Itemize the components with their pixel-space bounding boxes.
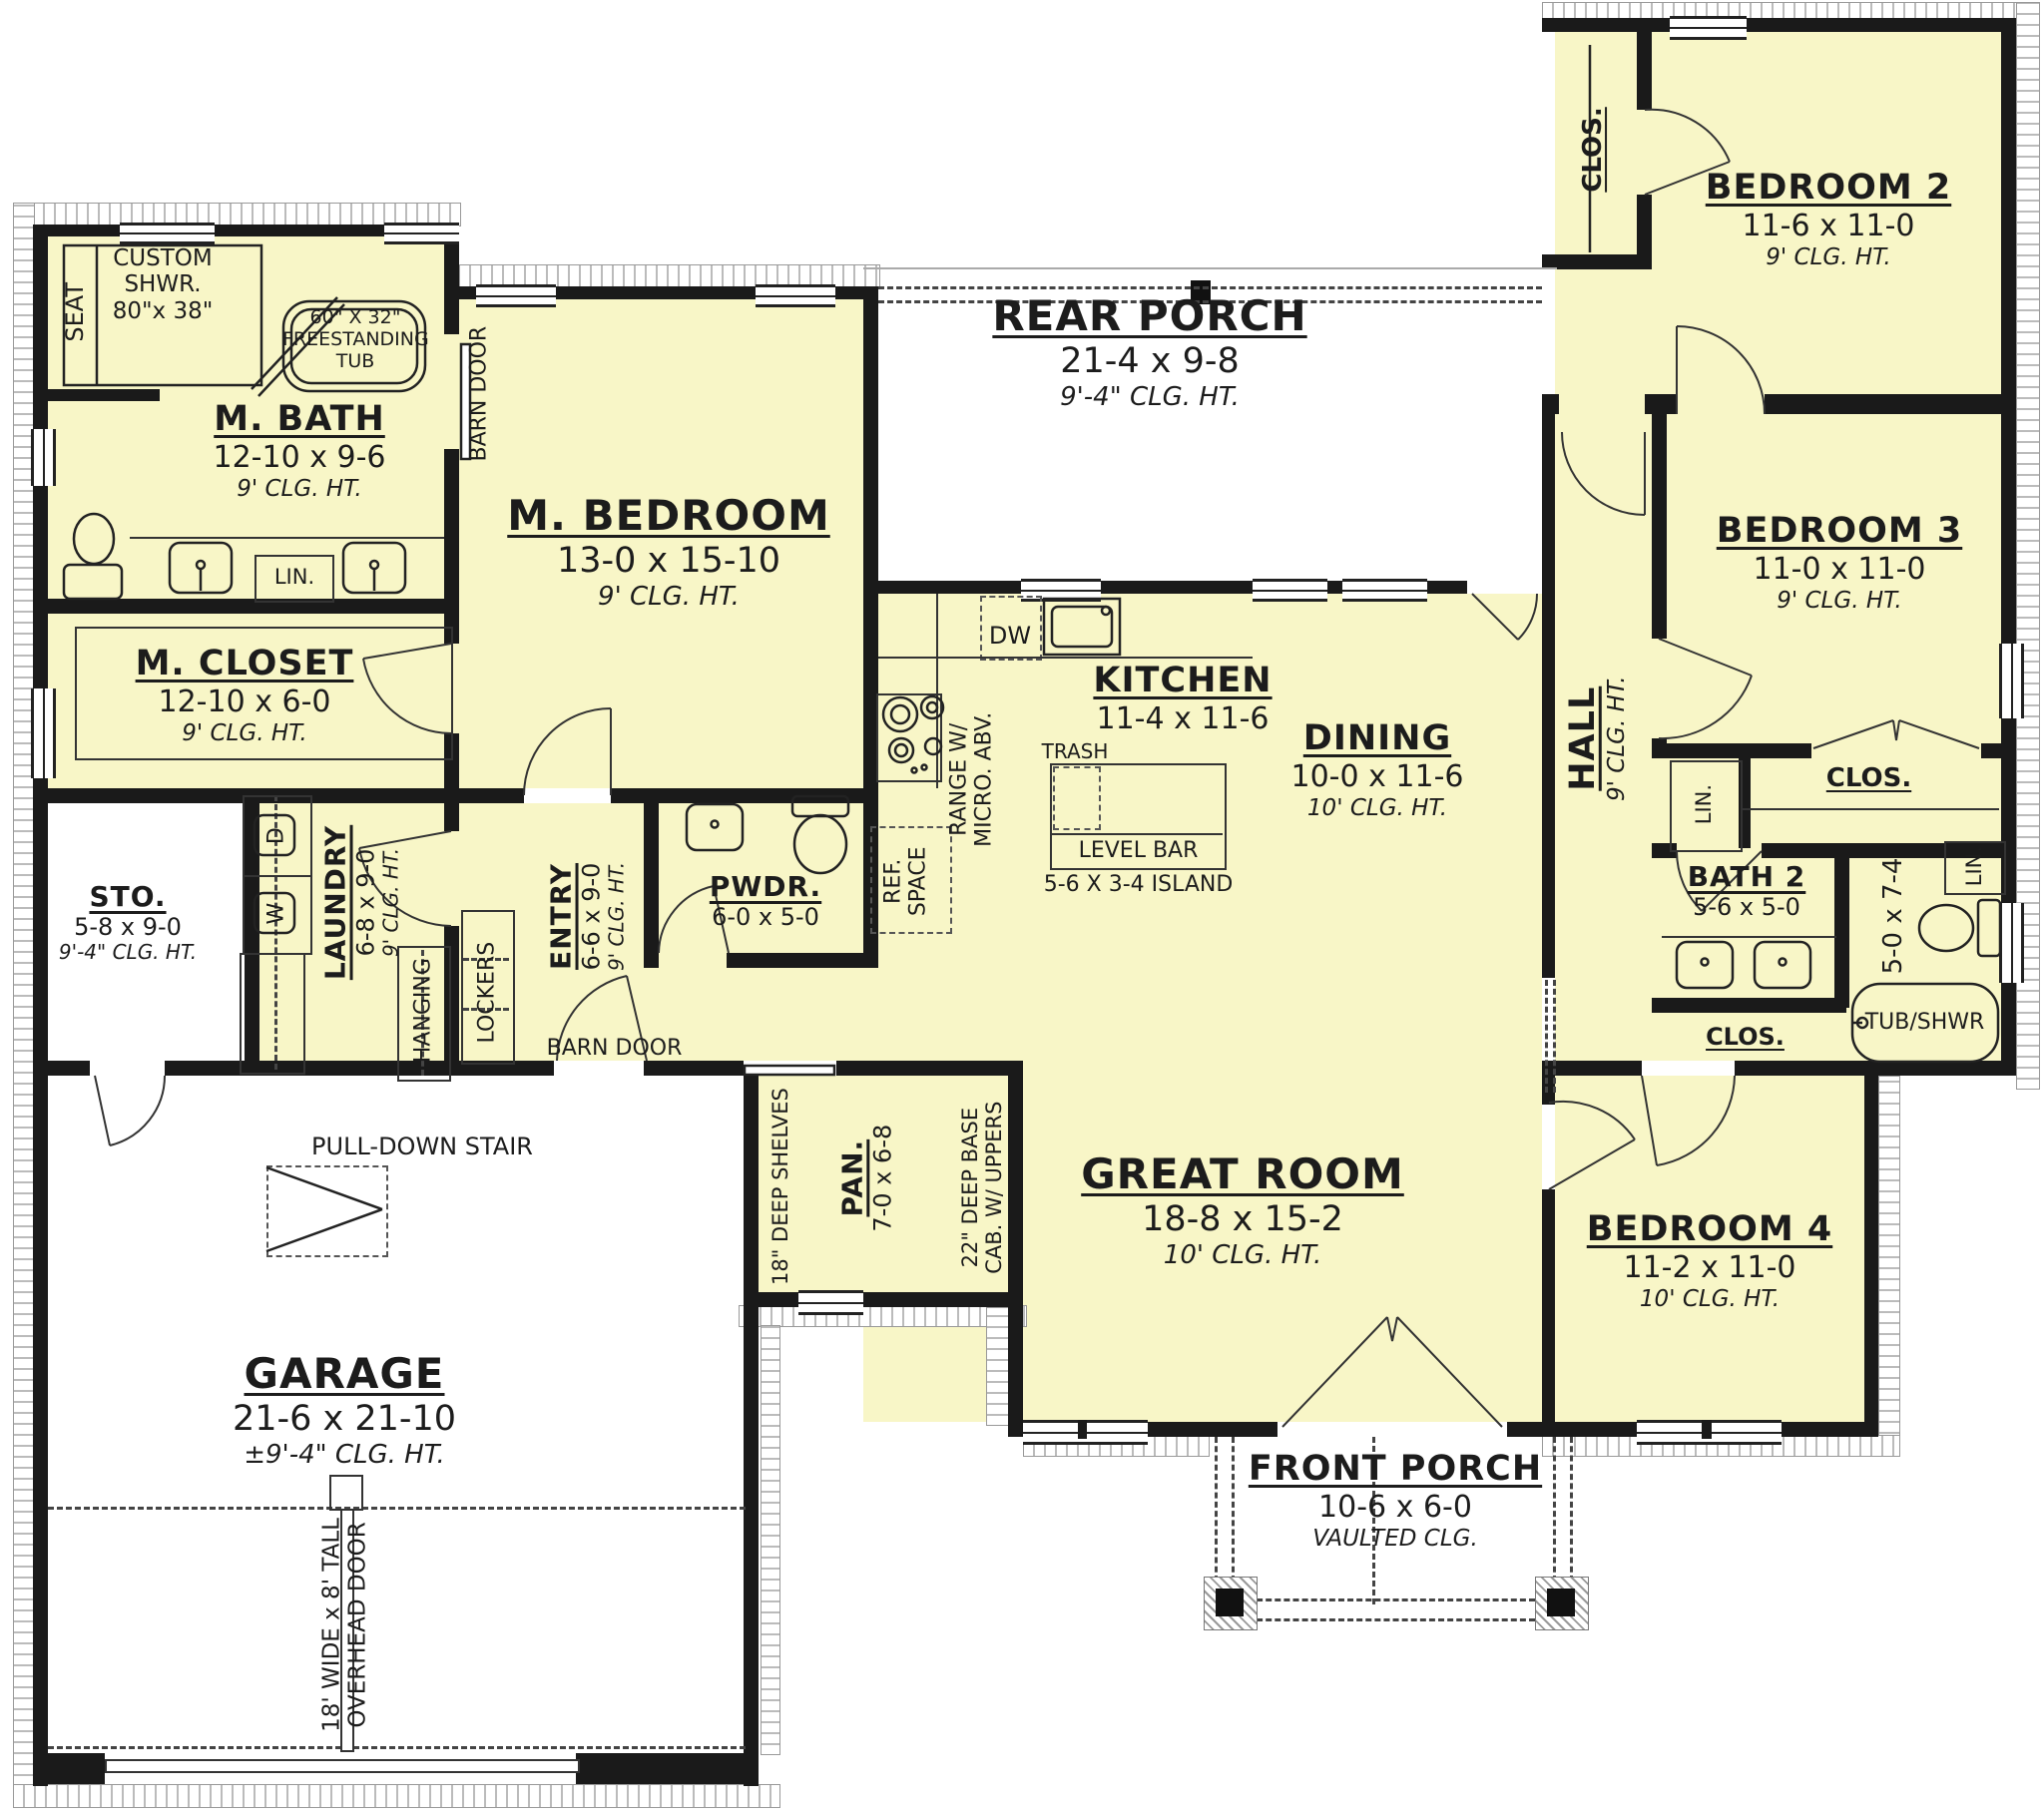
annotation-text: LIN. — [1962, 826, 1986, 906]
room-label-pantry: PAN. 7-0 x 6-8 — [835, 1079, 896, 1278]
room-dim: 5-8 x 9-0 — [38, 913, 218, 941]
annotation-text: 22" DEEP BASE — [958, 1073, 982, 1302]
room-name: BEDROOM 2 — [1649, 168, 2008, 209]
room-label-hall: HALL 9' CLG. HT. — [1563, 619, 1631, 858]
annotation-text: CAB. W/ UPPERS — [982, 1073, 1006, 1302]
burner — [921, 696, 943, 718]
room-name: HALL — [1563, 619, 1604, 858]
room-clg: 9' CLG. HT. — [380, 772, 404, 1032]
room-name: BEDROOM 4 — [1550, 1209, 1869, 1250]
room-label-bedroom3: BEDROOM 3 11-0 x 11-0 9' CLG. HT. — [1670, 511, 2009, 615]
annotation-text: LIN. — [256, 565, 332, 589]
annotation-text: CLOS. — [1579, 90, 1609, 210]
room-name: GREAT ROOM — [1033, 1149, 1452, 1199]
range-label: RANGE W/ MICRO. ABV. — [947, 680, 998, 879]
bifold-doors — [1813, 720, 1979, 748]
room-dim: 12-10 x 6-0 — [85, 684, 404, 719]
room-label-entry: ENTRY 6-6 x 9-0 9' CLG. HT. — [545, 786, 630, 1046]
room-label-m-bedroom: M. BEDROOM 13-0 x 15-10 9' CLG. HT. — [469, 491, 868, 613]
base-cab-label: 22" DEEP BASE CAB. W/ UPPERS — [958, 1073, 1006, 1302]
room-label-storage: STO. 5-8 x 9-0 9'-4" CLG. HT. — [38, 880, 218, 965]
annotation-text: LOCKERS — [474, 927, 499, 1059]
door-m-bedroom — [524, 708, 611, 795]
toilet-bowl — [74, 514, 114, 564]
room-clg: 10' CLG. HT. — [1033, 1240, 1452, 1271]
door-bedroom3 — [1659, 639, 1752, 738]
room-clg: 9'-4" CLG. HT. — [38, 941, 218, 965]
custom-shower-label: CUSTOM SHWR. 80"x 38" — [78, 245, 248, 324]
room-dim: 6-6 x 9-0 — [578, 786, 606, 1046]
room-clg: ±9'-4" CLG. HT. — [185, 1440, 504, 1471]
room-dim: 11-6 x 11-0 — [1649, 209, 2008, 243]
annotation-text: FREESTANDING — [282, 329, 428, 351]
room-dim: 5-6 x 5-0 — [1647, 893, 1846, 921]
door-dining-rear — [1472, 594, 1537, 640]
room-dim: 7-0 x 6-8 — [868, 1079, 896, 1278]
island-label: 5-6 X 3-4 ISLAND — [1026, 872, 1251, 897]
annotation-text: CUSTOM — [78, 245, 248, 271]
room-name: DINING — [1238, 718, 1517, 759]
burner — [889, 738, 913, 762]
annotation-text: TUB/SHWR — [1842, 1010, 2007, 1035]
room-dim: 12-10 x 9-6 — [160, 440, 439, 475]
annotation-text: CLOS. — [1796, 764, 1941, 794]
linen-label: LIN. — [1962, 826, 1986, 906]
shelves-label: 18" DEEP SHELVES — [768, 1067, 792, 1306]
room-clg: 9' CLG. HT. — [160, 476, 439, 503]
closet-label: CLOS. — [1683, 1024, 1807, 1052]
room-label-laundry: LAUNDRY 6-8 x 9-0 9' CLG. HT. — [319, 772, 404, 1032]
room-dim: 10-0 x 11-6 — [1238, 759, 1517, 794]
toilet-bowl — [794, 815, 846, 873]
room-dim: 5-0 x 7-4 — [1879, 836, 1909, 996]
room-label-front-porch: FRONT PORCH 10-6 x 6-0 VAULTED CLG. — [1226, 1449, 1565, 1553]
closet-label: CLOS. — [1796, 764, 1941, 794]
door-storage — [95, 1076, 165, 1145]
barn-door-label: BARN DOOR — [466, 319, 491, 469]
room-label-bedroom2: BEDROOM 2 11-6 x 11-0 9' CLG. HT. — [1649, 168, 2008, 271]
annotation-text: BARN DOOR — [466, 319, 491, 469]
linen-label: LIN. — [256, 565, 332, 589]
room-name: GARAGE — [185, 1349, 504, 1399]
toilet-tank — [1978, 900, 2000, 956]
ref-space-label: REF. SPACE — [881, 821, 932, 941]
room-dim: 21-6 x 21-10 — [185, 1399, 504, 1440]
annotation-text: CLOS. — [1683, 1024, 1807, 1052]
room-name: M. BATH — [160, 399, 439, 440]
annotation-text: REF. — [881, 821, 906, 941]
annotation-text: 18' WIDE x 8' TALL — [319, 1475, 345, 1774]
annotation-text: PULL-DOWN STAIR — [257, 1134, 587, 1161]
trash-label: TRASH — [1030, 740, 1120, 763]
annotation-text: D — [263, 821, 288, 851]
room-label-bath2-wet-dim: 5-0 x 7-4 — [1879, 836, 1909, 996]
pull-down-stair-fold — [266, 1167, 382, 1251]
closet-label: CLOS. — [1579, 90, 1609, 210]
annotation-text: HANGING — [410, 945, 435, 1077]
room-label-dining: DINING 10-0 x 11-6 10' CLG. HT. — [1238, 718, 1517, 822]
floor-plan: M. BATH 12-10 x 9-6 9' CLG. HT. M. CLOSE… — [0, 0, 2044, 1819]
room-name: LAUNDRY — [319, 772, 352, 1032]
room-clg: 9'-4" CLG. HT. — [950, 382, 1349, 413]
room-dim: 6-0 x 5-0 — [671, 903, 860, 931]
pull-down-stair-label: PULL-DOWN STAIR — [257, 1134, 587, 1161]
room-label-rear-porch: REAR PORCH 21-4 x 9-8 9'-4" CLG. HT. — [950, 291, 1349, 413]
dryer-label: D — [263, 821, 288, 851]
room-clg: 9' CLG. HT. — [1670, 588, 2009, 615]
door-bedroom4 — [1549, 1102, 1635, 1189]
sink-drain — [1780, 959, 1787, 966]
dishwasher-label: DW — [980, 623, 1040, 651]
annotation-text: DW — [980, 623, 1040, 651]
room-name: FRONT PORCH — [1226, 1449, 1565, 1490]
room-label-powder: PWDR. 6-0 x 5-0 — [671, 870, 860, 931]
room-label-bedroom4: BEDROOM 4 11-2 x 11-0 10' CLG. HT. — [1550, 1209, 1869, 1313]
annotation-text: 60" X 32" — [282, 307, 428, 329]
lockers-label: LOCKERS — [474, 927, 499, 1059]
toilet-bowl — [1919, 905, 1973, 951]
annotation-text: TRASH — [1030, 740, 1120, 763]
room-name: STO. — [38, 880, 218, 913]
level-bar-label: LEVEL BAR — [1056, 838, 1221, 863]
sink-drain — [370, 561, 378, 569]
door-bedroom2 — [1677, 326, 1765, 414]
room-label-great-room: GREAT ROOM 18-8 x 15-2 10' CLG. HT. — [1033, 1149, 1452, 1271]
washer-label: W — [263, 899, 288, 929]
room-name: REAR PORCH — [950, 291, 1349, 341]
room-dim: 6-8 x 9-0 — [352, 772, 380, 1032]
sink-drain — [712, 821, 719, 828]
hanging-label: HANGING — [410, 945, 435, 1077]
room-dim: 11-2 x 11-0 — [1550, 1250, 1869, 1285]
room-name: BATH 2 — [1647, 860, 1846, 893]
room-name: PWDR. — [671, 870, 860, 903]
room-dim: 21-4 x 9-8 — [950, 341, 1349, 382]
annotation-text: LEVEL BAR — [1056, 838, 1221, 863]
sink-drain — [197, 561, 205, 569]
annotation-text: OVERHEAD DOOR — [345, 1475, 371, 1774]
annotation-text: 5-6 X 3-4 ISLAND — [1026, 872, 1251, 897]
annotation-text: LIN. — [1692, 764, 1716, 844]
room-clg: VAULTED CLG. — [1226, 1526, 1565, 1553]
annotation-text: BARN DOOR — [532, 1036, 697, 1061]
faucet — [1102, 607, 1110, 615]
toilet-tank — [792, 796, 848, 816]
burner — [925, 738, 941, 754]
room-clg: 9' CLG. HT. — [606, 786, 630, 1046]
room-dim: 10-6 x 6-0 — [1226, 1490, 1565, 1525]
room-name: M. BEDROOM — [469, 491, 868, 541]
room-label-bath2: BATH 2 5-6 x 5-0 — [1647, 860, 1846, 921]
room-clg: 9' CLG. HT. — [1649, 244, 2008, 271]
burner — [883, 697, 917, 731]
overhead-door-label: 18' WIDE x 8' TALL OVERHEAD DOOR — [319, 1475, 372, 1774]
annotation-text: 80"x 38" — [78, 298, 248, 324]
room-clg: 9' CLG. HT. — [85, 720, 404, 747]
room-name: KITCHEN — [1023, 661, 1342, 701]
room-label-garage: GARAGE 21-6 x 21-10 ±9'-4" CLG. HT. — [185, 1349, 504, 1471]
room-label-m-closet: M. CLOSET 12-10 x 6-0 9' CLG. HT. — [85, 644, 404, 747]
annotation-text: 18" DEEP SHELVES — [768, 1067, 792, 1306]
french-doors — [1282, 1317, 1502, 1427]
annotation-text: SPACE — [906, 821, 931, 941]
room-label-m-bath: M. BATH 12-10 x 9-6 9' CLG. HT. — [160, 399, 439, 503]
room-clg: 9' CLG. HT. — [1604, 619, 1631, 858]
annotation-text: W — [263, 899, 288, 929]
door-hall — [1562, 432, 1645, 515]
barn-door-label: BARN DOOR — [532, 1036, 697, 1061]
annotation-text: TUB — [282, 351, 428, 373]
annotation-text: SHWR. — [78, 271, 248, 297]
annotation-text: MICRO. ABV. — [972, 680, 997, 879]
room-dim: 13-0 x 15-10 — [469, 541, 868, 582]
room-name: BEDROOM 3 — [1670, 511, 2009, 552]
annotation-text: RANGE W/ — [947, 680, 972, 879]
room-name: M. CLOSET — [85, 644, 404, 684]
toilet-tank — [64, 565, 122, 599]
linen-label: LIN. — [1692, 764, 1716, 844]
tub-label: 60" X 32" FREESTANDING TUB — [282, 307, 428, 373]
tub-shower-label: TUB/SHWR — [1842, 1010, 2007, 1035]
room-dim: 11-0 x 11-0 — [1670, 552, 2009, 587]
room-name: PAN. — [835, 1079, 868, 1278]
room-dim: 18-8 x 15-2 — [1033, 1199, 1452, 1240]
door-bath-closet — [1642, 1076, 1735, 1165]
room-clg: 10' CLG. HT. — [1550, 1286, 1869, 1313]
sink-drain — [1702, 959, 1709, 966]
room-clg: 10' CLG. HT. — [1238, 795, 1517, 822]
room-name: ENTRY — [545, 786, 578, 1046]
room-clg: 9' CLG. HT. — [469, 582, 868, 613]
